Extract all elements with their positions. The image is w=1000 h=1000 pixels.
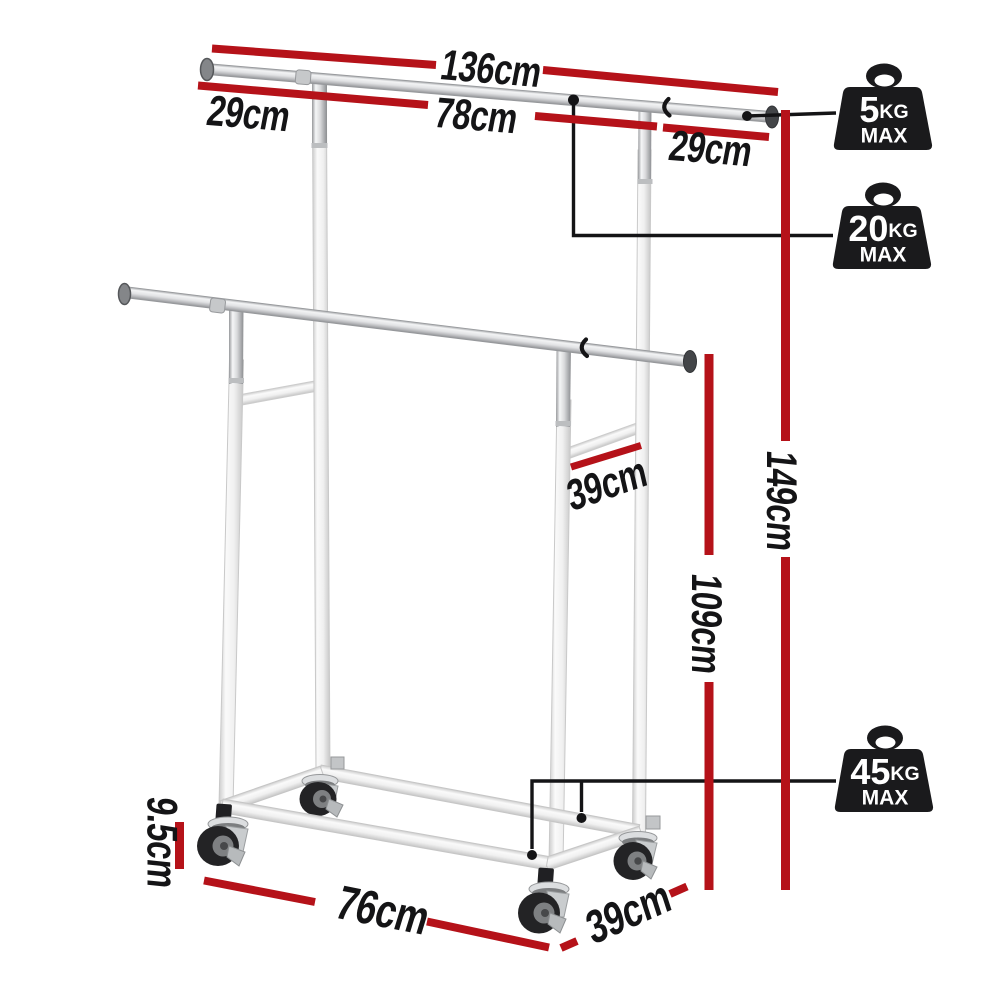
svg-text:MAX: MAX <box>862 787 909 810</box>
svg-text:29cm: 29cm <box>203 87 294 141</box>
svg-text:MAX: MAX <box>860 244 907 267</box>
svg-text:78cm: 78cm <box>431 89 522 143</box>
svg-text:9.5cm: 9.5cm <box>137 795 185 891</box>
svg-text:109cm: 109cm <box>682 572 730 677</box>
svg-text:29cm: 29cm <box>665 122 756 176</box>
svg-text:136cm: 136cm <box>437 41 546 97</box>
svg-text:MAX: MAX <box>861 125 908 148</box>
svg-text:149cm: 149cm <box>757 449 805 554</box>
